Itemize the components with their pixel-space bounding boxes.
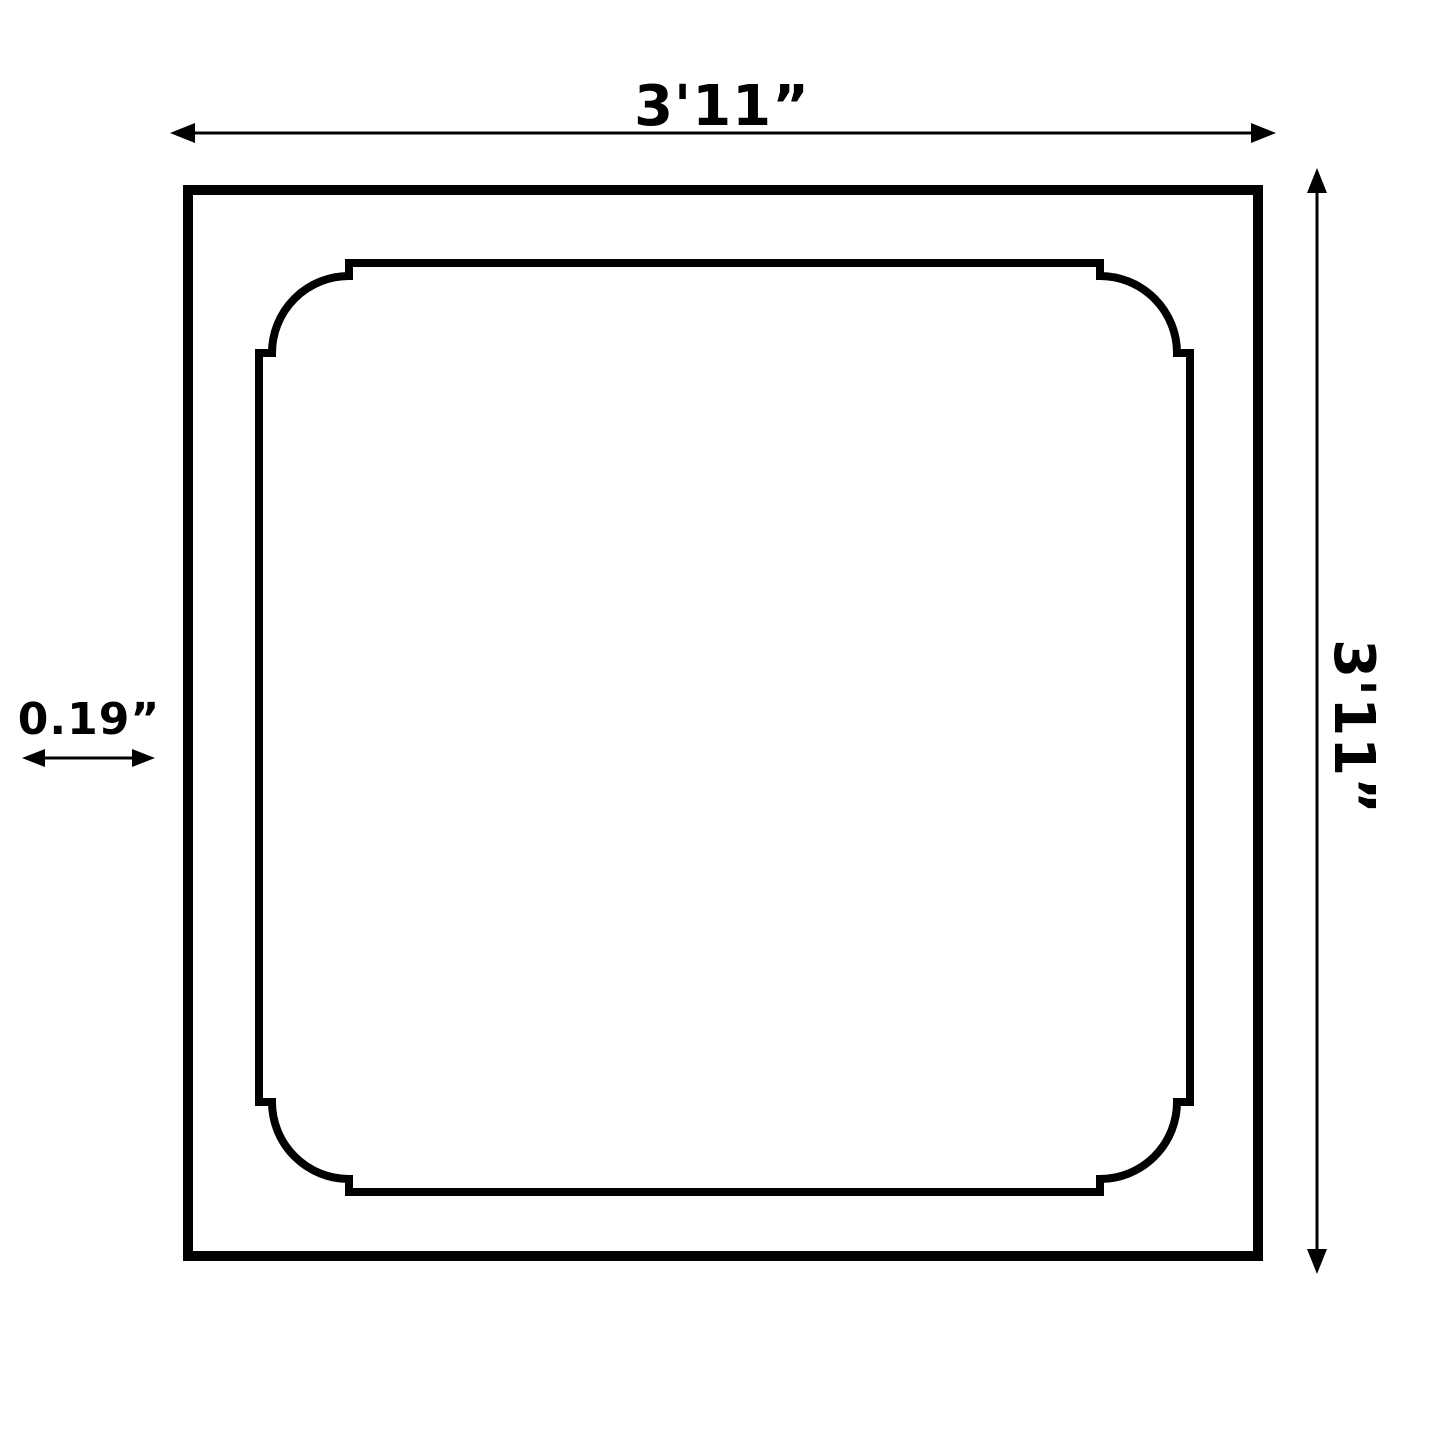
height-dimension-label: 3'11” [1325,639,1381,815]
arrowhead-right-icon [1251,123,1276,143]
inner-moulding-outline [259,263,1190,1192]
thickness-dimension-arrow [22,749,155,767]
arrowhead-left-icon [170,123,195,143]
thickness-dimension-label: 0.19” [18,698,160,742]
arrowhead-up-icon [1307,168,1327,193]
diagram-drawing [0,0,1445,1445]
arrowhead-down-icon [1307,1249,1327,1274]
outer-square-outline [188,190,1258,1256]
arrowhead-right-icon [132,749,155,767]
dimension-diagram: 3'11” 3'11” 0.19” [0,0,1445,1445]
width-dimension-label: 3'11” [634,79,810,135]
arrowhead-left-icon [22,749,45,767]
